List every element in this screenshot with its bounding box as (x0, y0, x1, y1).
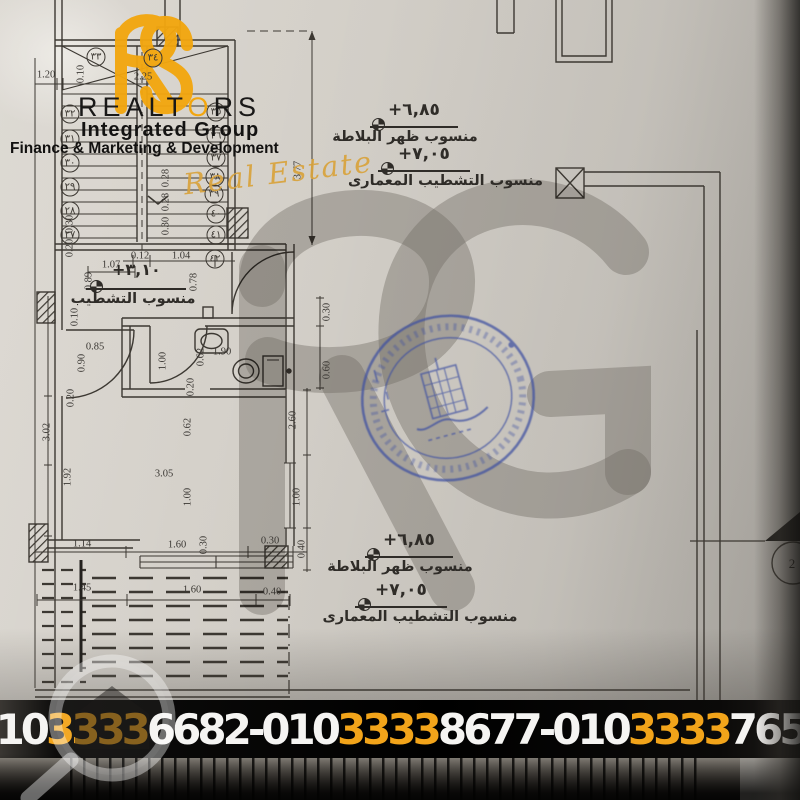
level-annotation-finish-bottom: +٧,٠٥ منسوب التشطيب المعمارى (300, 583, 540, 631)
dimension-label: 3.02 (42, 423, 53, 441)
level-value: +٧,٠٥ (375, 580, 427, 600)
phone-separator: - (539, 705, 552, 754)
dimension-label: 0.60 (322, 361, 333, 379)
dimension-label: 1.60 (168, 540, 186, 551)
dimension-label: 0.40 (263, 587, 281, 598)
dimension-label: 0.62 (183, 418, 194, 436)
dimension-label: 0.10 (70, 308, 81, 326)
dimension-label: 3.05 (155, 469, 173, 480)
dimension-label: 1.45 (73, 583, 91, 594)
brand-tagline: Finance & Marketing & Development (10, 140, 279, 158)
brand-subtitle: Integrated Group (81, 119, 259, 142)
dimension-label: 0.40 (297, 540, 308, 558)
dimension-label: 1.04 (172, 251, 190, 262)
stair-step-number: ٤٠ (207, 205, 226, 224)
dimension-label: 1.92 (63, 468, 74, 486)
dimension-label: 1.90 (213, 347, 231, 358)
dimension-label: 0.28 (161, 169, 172, 187)
phone-number: 01033338677 (261, 705, 538, 754)
phone-part-highlight: 3333 (628, 705, 729, 754)
phone-part: 010 (552, 705, 628, 754)
level-label: منسوب التشطيب (68, 291, 198, 307)
dimension-label: 0.85 (86, 342, 104, 353)
level-label: منسوب ظهر البلاطة (325, 559, 475, 575)
stair-step-number: ٣٣ (87, 48, 106, 67)
dimension-label: 0.10 (76, 65, 87, 83)
dimension-label: 1.00 (183, 488, 194, 506)
phone-separator: - (248, 705, 261, 754)
stair-step-number: ٢٨ (61, 202, 80, 221)
dimension-label: 0.62 (196, 348, 207, 366)
stair-step-number: ٢٧ (61, 226, 80, 245)
level-annotation-mid-finish: +٣,١٠ منسوب التشطيب (68, 262, 198, 308)
scanned-floor-plan-photo: 2 REALTORS (0, 0, 800, 800)
stair-step-number: ٣٤ (144, 49, 163, 68)
brand-name-pre: REALT (78, 92, 188, 122)
dimension-label: 1.00 (158, 352, 169, 370)
dimension-label: 1.14 (73, 539, 91, 550)
level-value: +٦,٨٥ (388, 100, 440, 120)
dimension-label: 0.20 (186, 378, 197, 396)
dimension-label: 1.60 (183, 585, 201, 596)
dimension-label: 0.20 (66, 389, 77, 407)
stair-step-number: ٤٢ (206, 250, 225, 269)
stair-step-number: ٣٢ (61, 105, 80, 124)
magnifier-house-icon (8, 648, 238, 800)
dimension-label: 2.25 (134, 72, 152, 83)
dimension-label: 1.00 (292, 488, 303, 506)
dimension-label: 0.28 (161, 193, 172, 211)
level-value: +٧,٠٥ (398, 144, 450, 164)
dimension-label: 0.30 (199, 536, 210, 554)
brand-name-o: O (188, 92, 214, 122)
phone-part: 010 (261, 705, 337, 754)
level-value: +٣,١٠ (112, 260, 161, 279)
level-value: +٦,٨٥ (383, 530, 435, 550)
stair-step-number: ٢٩ (61, 178, 80, 197)
brand-name-post: RS (214, 92, 262, 122)
dimension-label: 0.30 (261, 536, 279, 547)
dimension-label: 1.20 (37, 70, 55, 81)
dimension-label: 0.30 (161, 217, 172, 235)
phone-part: 8677 (438, 705, 539, 754)
level-label: منسوب ظهر البلاطة (330, 129, 480, 145)
dimension-label: 0.30 (322, 303, 333, 321)
level-annotation-slab-bottom: +٦,٨٥ منسوب ظهر البلاطة (325, 533, 475, 581)
dimension-label: 2.60 (288, 411, 299, 429)
photo-right-edge (754, 0, 800, 800)
level-label: منسوب التشطيب المعمارى (300, 609, 540, 625)
phone-part-highlight: 3333 (337, 705, 438, 754)
stair-step-number: ٤١ (207, 226, 226, 245)
dimension-label: 0.90 (77, 354, 88, 372)
